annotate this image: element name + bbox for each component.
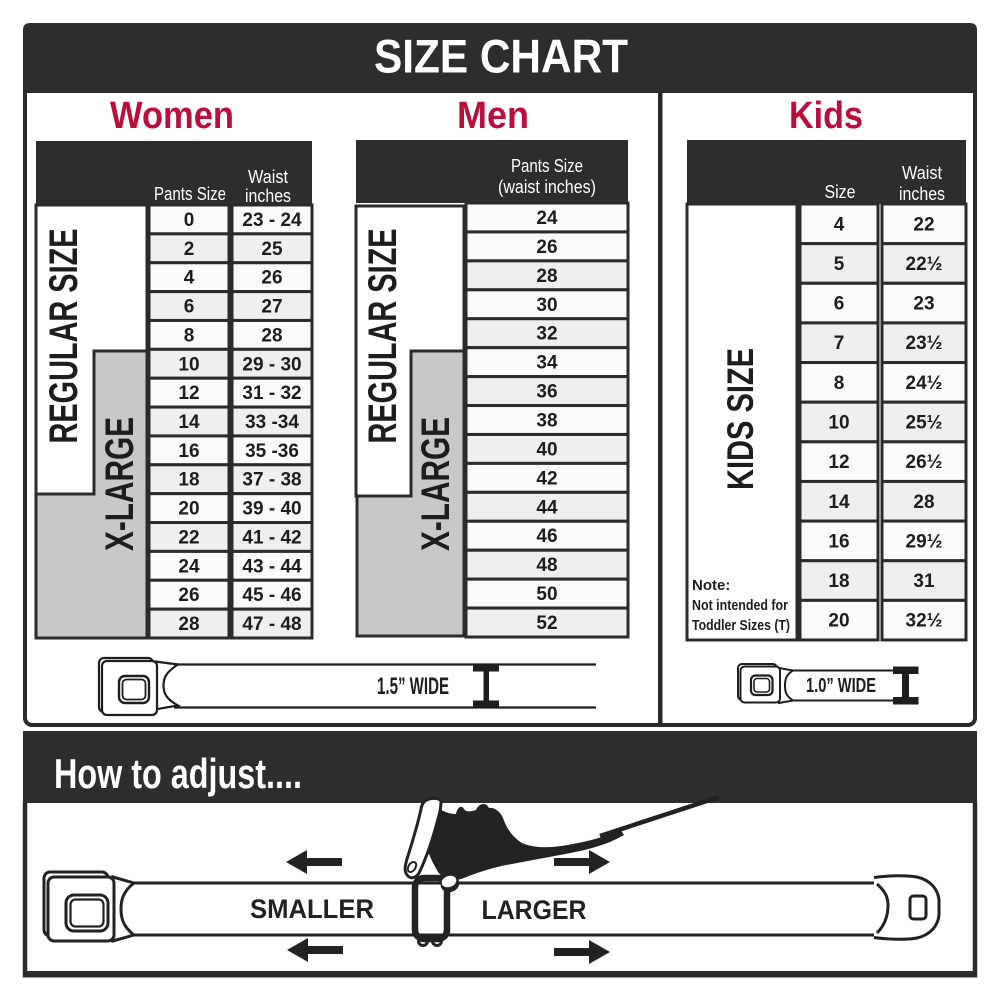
svg-text:47 - 48: 47 - 48 (242, 614, 301, 635)
svg-text:6: 6 (834, 294, 845, 315)
svg-text:LARGER: LARGER (482, 895, 587, 925)
svg-text:18: 18 (178, 470, 199, 491)
svg-text:10: 10 (178, 354, 199, 375)
svg-text:50: 50 (536, 584, 557, 605)
svg-text:28: 28 (536, 266, 557, 287)
svg-text:14: 14 (828, 492, 850, 513)
svg-text:7: 7 (834, 333, 845, 354)
svg-text:26: 26 (261, 268, 282, 289)
svg-text:48: 48 (536, 555, 557, 576)
svg-text:1.5” WIDE: 1.5” WIDE (377, 673, 449, 700)
svg-text:Toddler Sizes (T): Toddler Sizes (T) (692, 617, 790, 634)
svg-text:28: 28 (913, 492, 934, 513)
svg-text:28: 28 (178, 614, 199, 635)
svg-text:22: 22 (913, 214, 934, 235)
svg-text:SMALLER: SMALLER (250, 894, 374, 924)
svg-text:41 - 42: 41 - 42 (242, 528, 301, 549)
svg-text:8: 8 (184, 325, 195, 346)
svg-text:24: 24 (178, 556, 200, 577)
svg-text:29½: 29½ (906, 531, 943, 552)
svg-text:12: 12 (178, 383, 199, 404)
svg-text:inches: inches (245, 186, 291, 206)
svg-text:23 - 24: 23 - 24 (242, 210, 302, 231)
svg-text:5: 5 (834, 254, 845, 275)
svg-text:43 - 44: 43 - 44 (242, 556, 302, 577)
svg-text:26: 26 (178, 585, 199, 606)
svg-text:Women: Women (110, 95, 234, 137)
svg-text:31: 31 (913, 571, 935, 592)
svg-text:36: 36 (536, 382, 557, 403)
svg-text:32½: 32½ (906, 611, 943, 632)
svg-text:16: 16 (178, 441, 199, 462)
svg-text:10: 10 (828, 413, 849, 434)
svg-text:45 - 46: 45 - 46 (242, 585, 301, 606)
svg-text:42: 42 (536, 468, 557, 489)
svg-text:31 - 32: 31 - 32 (242, 383, 301, 404)
svg-text:40: 40 (536, 439, 557, 460)
svg-text:How to adjust....: How to adjust.... (54, 750, 302, 797)
svg-text:32: 32 (536, 324, 557, 345)
svg-text:4: 4 (184, 268, 195, 289)
svg-text:25½: 25½ (906, 413, 943, 434)
svg-text:37 - 38: 37 - 38 (242, 470, 301, 491)
svg-text:Not intended for: Not intended for (692, 597, 788, 614)
svg-text:23: 23 (913, 294, 934, 315)
svg-text:34: 34 (536, 353, 558, 374)
svg-text:Pants Size: Pants Size (154, 184, 226, 204)
svg-text:44: 44 (536, 497, 558, 518)
svg-text:26: 26 (536, 237, 557, 258)
svg-text:SIZE CHART: SIZE CHART (374, 30, 628, 83)
svg-text:6: 6 (184, 297, 195, 318)
svg-text:30: 30 (536, 295, 557, 316)
svg-text:22½: 22½ (906, 254, 943, 275)
svg-text:1.0” WIDE: 1.0” WIDE (806, 675, 876, 697)
svg-text:2: 2 (184, 239, 195, 260)
svg-text:8: 8 (834, 373, 845, 394)
svg-text:38: 38 (536, 411, 557, 432)
svg-text:22: 22 (178, 528, 199, 549)
svg-text:52: 52 (536, 613, 557, 634)
svg-text:27: 27 (261, 297, 282, 318)
svg-text:14: 14 (178, 412, 200, 433)
svg-text:KIDS SIZE: KIDS SIZE (720, 348, 761, 490)
svg-text:39 - 40: 39 - 40 (242, 499, 301, 520)
svg-text:24: 24 (536, 208, 558, 229)
svg-text:26½: 26½ (906, 452, 943, 473)
svg-text:29 - 30: 29 - 30 (242, 354, 301, 375)
svg-text:16: 16 (828, 531, 849, 552)
svg-text:46: 46 (536, 526, 557, 547)
svg-text:0: 0 (184, 210, 195, 231)
svg-text:Men: Men (457, 95, 529, 137)
svg-text:Kids: Kids (789, 95, 863, 137)
svg-text:25: 25 (261, 239, 283, 260)
svg-text:Size: Size (825, 182, 856, 202)
svg-text:33 -34: 33 -34 (245, 412, 299, 433)
svg-text:REGULAR SIZE: REGULAR SIZE (42, 229, 86, 444)
svg-text:35 -36: 35 -36 (245, 441, 299, 462)
svg-text:28: 28 (261, 325, 282, 346)
svg-text:Waist: Waist (248, 167, 288, 187)
svg-text:4: 4 (834, 214, 845, 235)
svg-text:20: 20 (828, 611, 849, 632)
svg-text:Waist: Waist (902, 163, 942, 183)
svg-text:20: 20 (178, 499, 199, 520)
svg-text:23½: 23½ (906, 333, 943, 354)
svg-text:18: 18 (828, 571, 849, 592)
svg-text:Pants Size: Pants Size (511, 156, 583, 176)
svg-text:inches: inches (899, 184, 945, 204)
svg-text:X-LARGE: X-LARGE (414, 417, 458, 551)
svg-text:X-LARGE: X-LARGE (98, 417, 142, 551)
svg-text:12: 12 (828, 452, 849, 473)
svg-text:24½: 24½ (906, 373, 943, 394)
svg-text:REGULAR SIZE: REGULAR SIZE (361, 229, 405, 444)
svg-text:(waist inches): (waist inches) (498, 177, 596, 197)
svg-text:Note:: Note: (692, 577, 730, 594)
